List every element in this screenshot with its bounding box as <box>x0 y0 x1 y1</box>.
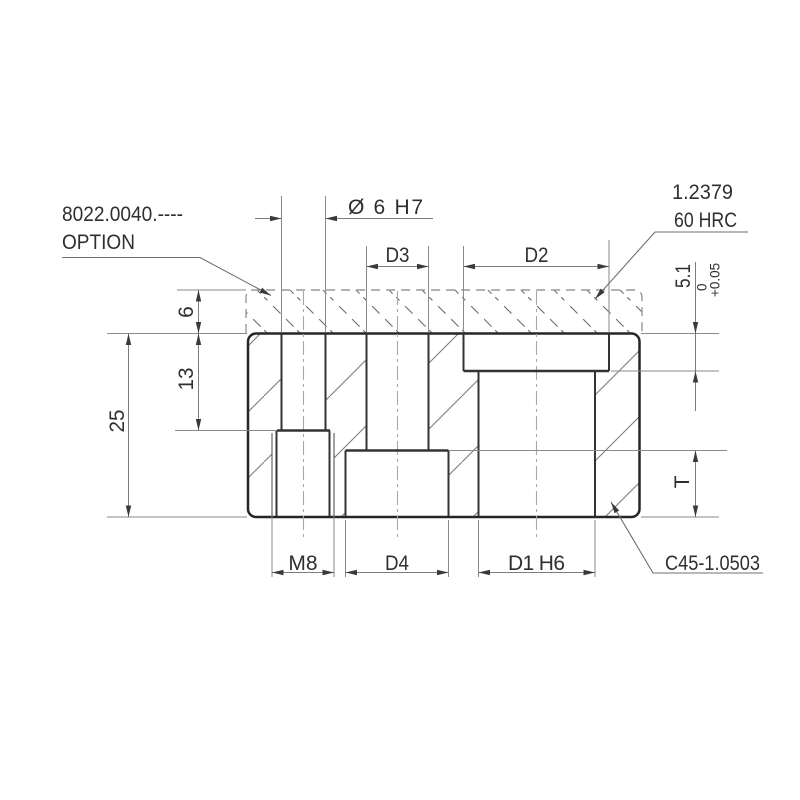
dim-13-label: 13 <box>175 368 198 391</box>
hardness-label: 60 HRC <box>674 209 737 232</box>
dim-d2-label: D2 <box>525 244 549 267</box>
part-number-label: 8022.0040.---- <box>62 203 183 226</box>
dim-d3-label: D3 <box>386 244 410 267</box>
steel-grade-label: 1.2379 <box>672 181 733 204</box>
material-label: C45-1.0503 <box>665 552 760 575</box>
dim-d4-label: D4 <box>385 552 409 575</box>
dim-6-label: 6 <box>175 306 198 318</box>
dim-t-label: T <box>671 475 694 488</box>
option-zone <box>246 290 642 333</box>
dim-5-1-tol-lower: +0.05 <box>708 263 723 297</box>
drawing-background <box>0 0 800 800</box>
technical-drawing-canvas: Ø 6 H7 D3 D2 6 13 25 5.1 0 +0.05 T <box>0 0 800 800</box>
dim-25-label: 25 <box>106 410 129 433</box>
dim-m8-label: M8 <box>288 552 317 575</box>
dim-5-1-label: 5.1 <box>672 264 695 288</box>
dim-d1h6-label: D1 H6 <box>508 552 565 575</box>
option-label: OPTION <box>62 231 135 254</box>
technical-drawing-page: Ø 6 H7 D3 D2 6 13 25 5.1 0 +0.05 T <box>0 0 800 800</box>
